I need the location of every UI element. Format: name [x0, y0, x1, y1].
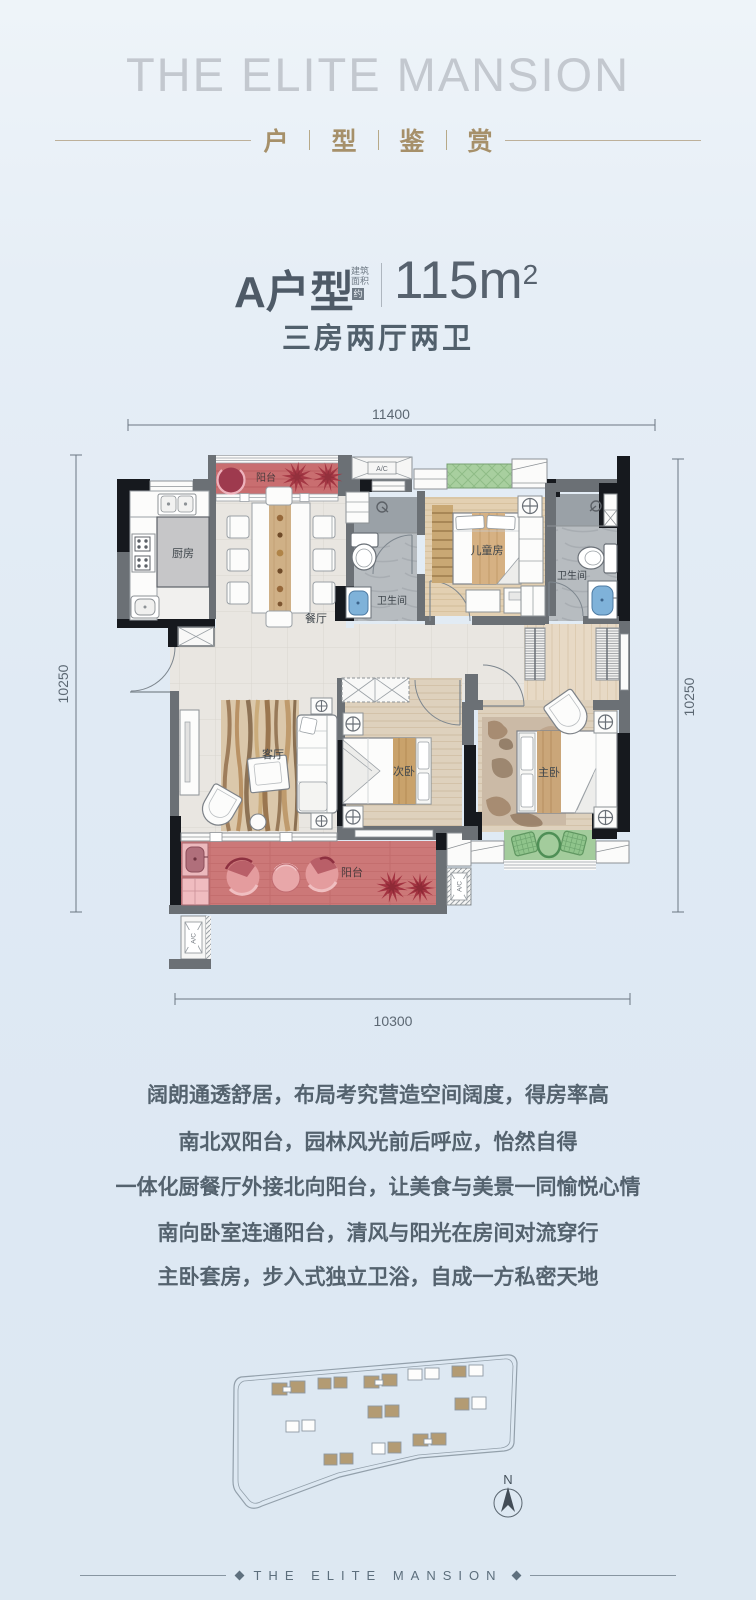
svg-text:10300: 10300 — [374, 1013, 413, 1029]
svg-text:次卧: 次卧 — [393, 764, 415, 778]
svg-text:厨房: 厨房 — [172, 547, 194, 560]
svg-text:主卧: 主卧 — [538, 766, 560, 779]
svg-text:11400: 11400 — [372, 406, 410, 422]
svg-text:10250: 10250 — [681, 677, 697, 716]
svg-text:卫生间: 卫生间 — [557, 569, 587, 582]
svg-text:卫生间: 卫生间 — [377, 594, 407, 607]
svg-text:A/C: A/C — [457, 881, 464, 892]
svg-text:A/C: A/C — [191, 933, 198, 944]
svg-text:10250: 10250 — [55, 664, 71, 703]
svg-text:客厅: 客厅 — [262, 747, 284, 761]
svg-text:儿童房: 儿童房 — [471, 543, 504, 557]
svg-text:阳台: 阳台 — [256, 471, 276, 484]
svg-text:餐厅: 餐厅 — [305, 611, 327, 625]
svg-text:A/C: A/C — [376, 466, 388, 473]
svg-text:N: N — [503, 1472, 512, 1487]
svg-text:阳台: 阳台 — [341, 865, 363, 879]
